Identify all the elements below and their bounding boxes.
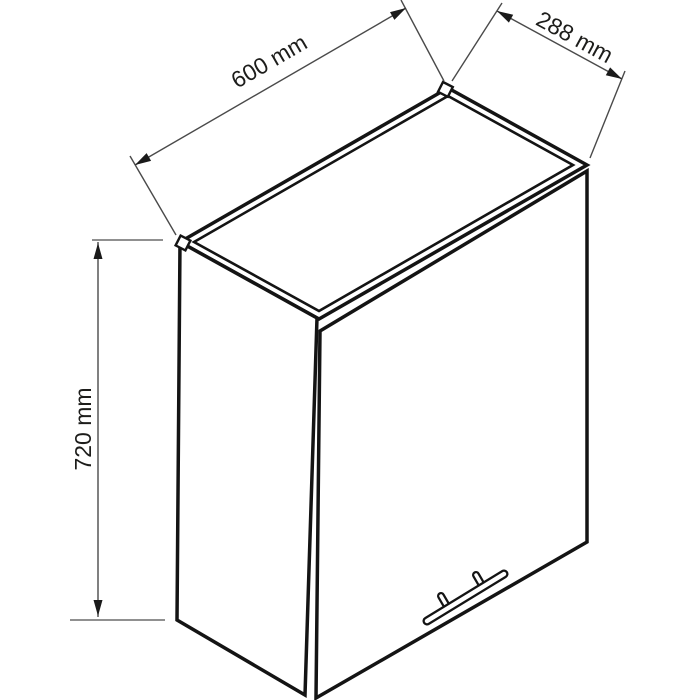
depth-extension-line-left <box>452 3 502 81</box>
technical-drawing-canvas: 600 mm 288 mm 720 mm <box>0 0 700 700</box>
width-extension-line-left <box>130 156 176 235</box>
arrowhead-icon <box>135 153 151 165</box>
dimension-height-label: 720 mm <box>70 387 96 470</box>
width-extension-line-right <box>401 0 444 81</box>
dimension-height: 720 mm <box>70 240 165 620</box>
dimension-width-label: 600 mm <box>227 29 312 93</box>
arrowhead-icon <box>94 600 103 616</box>
arrowhead-icon <box>606 67 622 79</box>
arrowhead-icon <box>390 8 406 20</box>
cabinet-drawing <box>176 82 587 698</box>
cabinet-side-panel <box>177 242 317 695</box>
arrowhead-icon <box>94 243 103 259</box>
arrowhead-icon <box>497 11 513 23</box>
cabinet-dimension-diagram: 600 mm 288 mm 720 mm <box>0 0 700 700</box>
depth-extension-line-right <box>590 71 625 158</box>
